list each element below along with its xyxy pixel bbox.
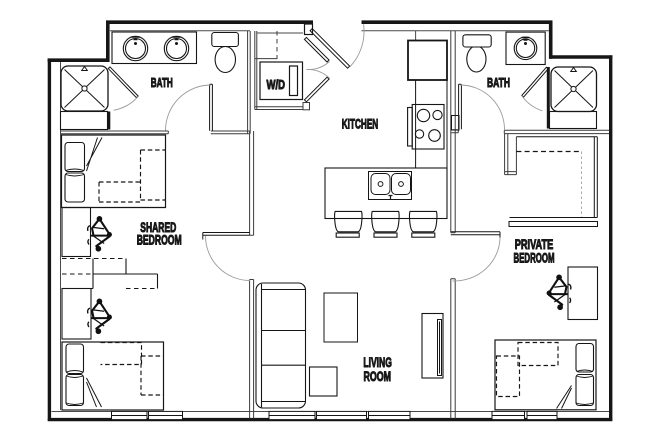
svg-text:W/D: W/D — [267, 77, 286, 92]
svg-text:BATH: BATH — [487, 75, 510, 90]
svg-text:BATH: BATH — [151, 75, 173, 90]
svg-text:BEDROOM: BEDROOM — [514, 251, 555, 266]
svg-text:BEDROOM: BEDROOM — [137, 233, 182, 248]
svg-text:KITCHEN: KITCHEN — [342, 115, 379, 131]
svg-text:LIVING: LIVING — [363, 355, 392, 370]
svg-text:ROOM: ROOM — [364, 369, 392, 384]
